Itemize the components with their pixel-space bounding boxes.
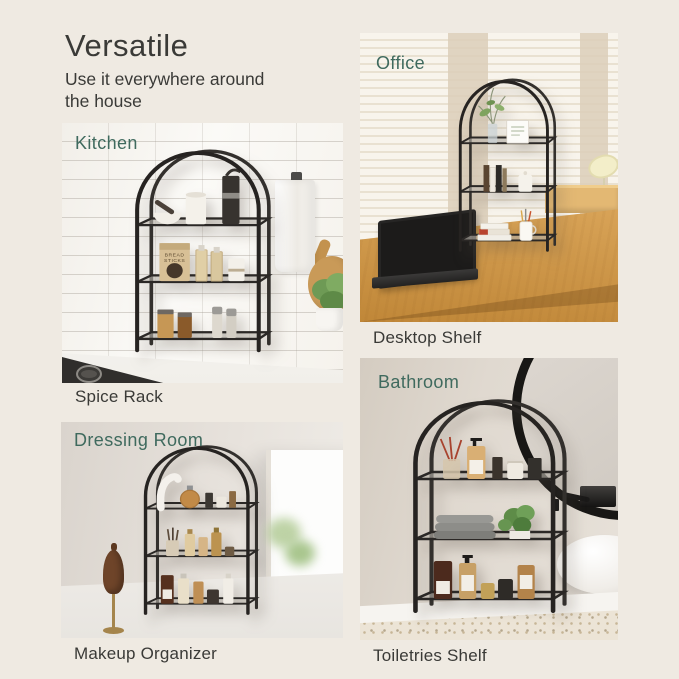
- office-shelf-items: [478, 88, 536, 240]
- kitchen-shelf-items: BREAD STICKS: [153, 170, 244, 338]
- bathroom-shelf-items: [434, 437, 542, 599]
- dressing-shelf-items: [160, 477, 236, 604]
- hanging-towel: [275, 180, 315, 272]
- window-greenery: [285, 540, 315, 566]
- arched-shelf-bathroom: [404, 385, 576, 617]
- caption-desktop-shelf: Desktop Shelf: [373, 328, 481, 348]
- dress-form-pole: [112, 592, 115, 630]
- room-label-office: Office: [376, 53, 425, 74]
- marketing-page: Versatile Use it everywhere around the h…: [0, 0, 679, 679]
- dressing-room-photo: Dressing Room: [61, 422, 343, 638]
- dress-form-base: [103, 627, 124, 634]
- room-label-kitchen: Kitchen: [75, 133, 138, 154]
- arched-shelf-office: [453, 67, 562, 255]
- arched-shelf-kitchen: BREAD STICKS: [127, 136, 279, 356]
- bathroom-photo: Bathroom: [360, 358, 618, 640]
- page-title: Versatile: [65, 28, 188, 64]
- plant-pot: [316, 308, 343, 331]
- office-photo: Office: [360, 33, 618, 322]
- stove-burner: [76, 365, 102, 383]
- svg-text:BREAD: BREAD: [165, 253, 185, 259]
- caption-spice-rack: Spice Rack: [75, 387, 163, 407]
- dress-form-mannequin: [103, 550, 124, 594]
- caption-makeup-organizer: Makeup Organizer: [74, 644, 217, 664]
- kitchen-photo: BREAD STICKS Kitchen: [62, 123, 343, 383]
- page-subtitle: Use it everywhere around the house: [65, 68, 285, 113]
- room-label-bathroom: Bathroom: [378, 372, 459, 393]
- caption-toiletries-shelf: Toiletries Shelf: [373, 646, 487, 666]
- room-label-dressing-room: Dressing Room: [74, 430, 203, 451]
- arched-shelf-dressing: [137, 434, 265, 618]
